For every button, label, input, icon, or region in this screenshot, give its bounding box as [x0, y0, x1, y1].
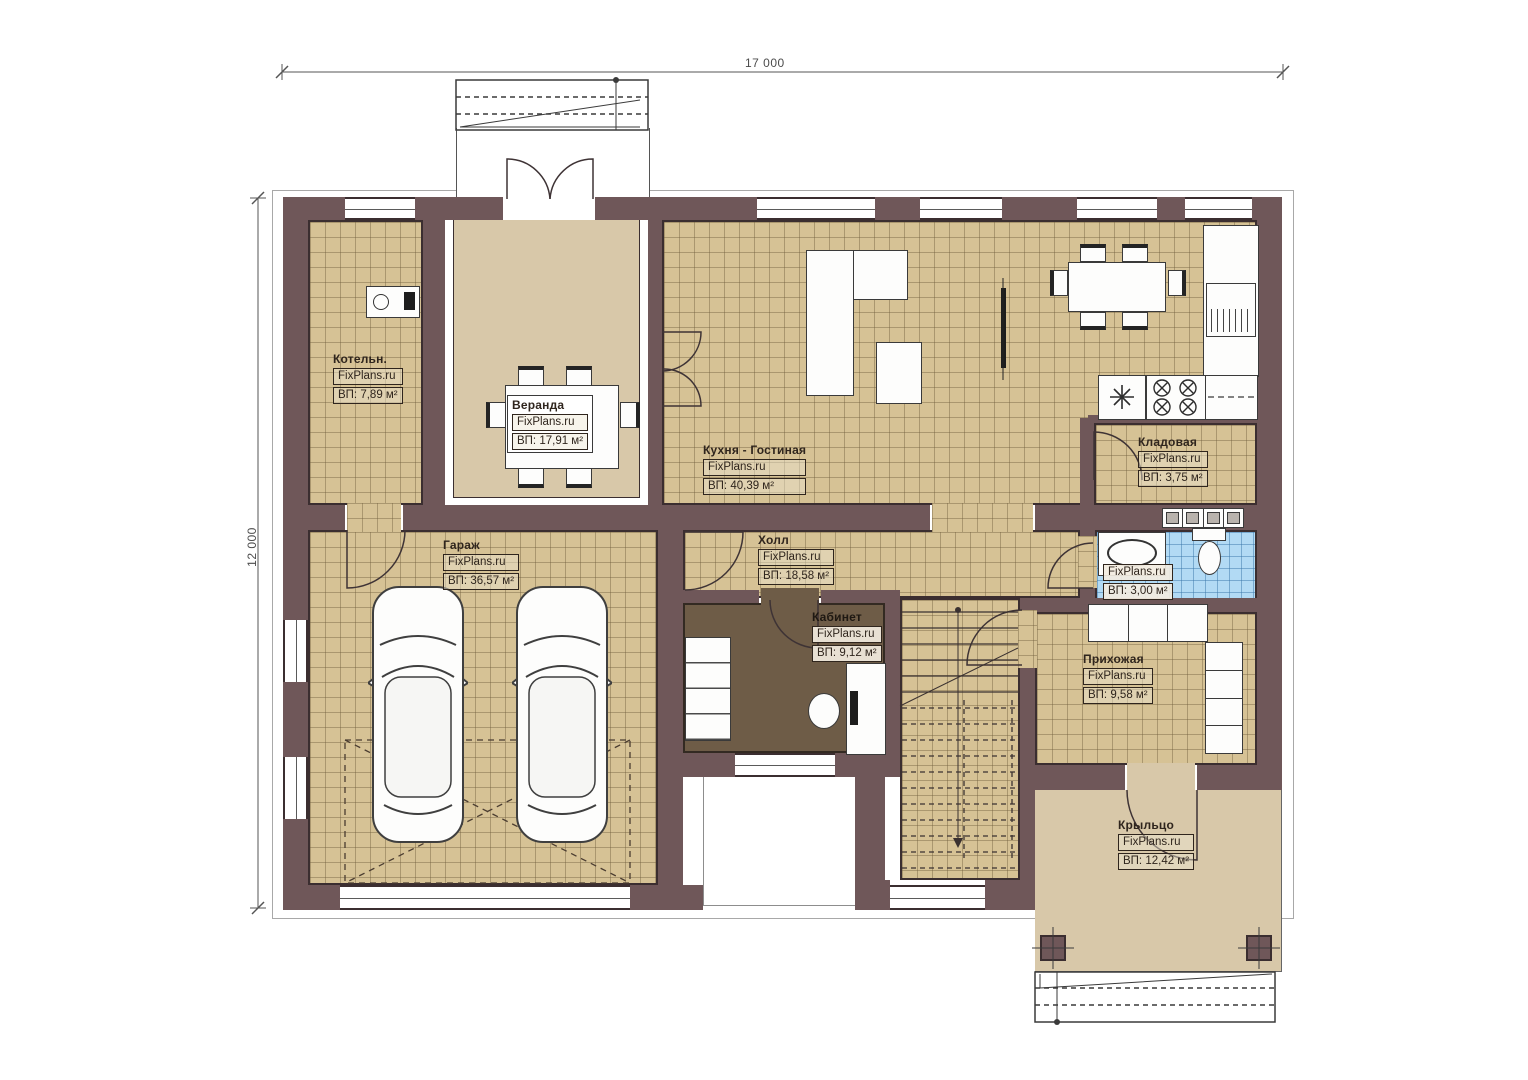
room-label-kitchen-living: Кухня - Гостиная FixPlans.ru ВП: 40,39 м… [703, 443, 806, 495]
door-opening-entrance-hall [1018, 610, 1037, 668]
boiler-dial [373, 294, 389, 310]
door-opening-porch [1127, 763, 1195, 792]
toilet-bowl [1198, 541, 1221, 575]
wall-garage-east [658, 508, 683, 885]
opening-kitchen-hall [932, 503, 1033, 532]
stove [1146, 375, 1206, 420]
hall-floor [683, 530, 1080, 598]
wall-entrance-west-b [1020, 666, 1035, 880]
wall-stairs-south-b [985, 880, 1035, 910]
chair [1168, 270, 1186, 296]
wall-east [1257, 197, 1282, 790]
wall-mid-d [1035, 505, 1082, 530]
chair [566, 468, 592, 488]
wall-mid-b [403, 505, 702, 530]
veranda-landing [456, 128, 650, 197]
window-kitchen-2 [1185, 197, 1252, 220]
wall-office-south-a [683, 753, 735, 777]
exterior-niche [703, 777, 857, 906]
stairwell-floor [900, 598, 1020, 880]
sofa-side-section [806, 250, 854, 396]
wall-garage-south-b [630, 885, 703, 910]
window-office-bay [735, 753, 835, 777]
coffee-table [876, 342, 922, 404]
fridge-grille [1211, 309, 1251, 332]
room-label-boiler: Котельн. FixPlans.ru ВП: 7,89 м² [333, 352, 403, 404]
dining-table [1068, 262, 1166, 312]
office-monitor [850, 691, 858, 725]
bathroom-cabinet-row [1162, 508, 1244, 528]
wardrobe-top [1088, 604, 1208, 642]
chair [1122, 244, 1148, 262]
room-label-office: Кабинет FixPlans.ru ВП: 9,12 м² [812, 610, 882, 662]
wall-mid-c [702, 505, 930, 530]
veranda-doorway [503, 197, 595, 220]
chair [518, 468, 544, 488]
room-label-entrance-hall: Прихожая FixPlans.ru ВП: 9,58 м² [1083, 652, 1153, 704]
window-garage-1 [283, 620, 308, 682]
kitchen-sink-unit [1098, 375, 1146, 420]
chair [1050, 270, 1068, 296]
chair [1080, 312, 1106, 330]
wall-mid-a [283, 505, 345, 530]
window-kitchen-1 [1077, 197, 1157, 220]
wall-veranda-kitchen [648, 197, 662, 508]
chair [566, 366, 592, 386]
room-label-porch: Крыльцо FixPlans.ru ВП: 12,42 м² [1118, 818, 1194, 870]
wall-office-east [885, 603, 900, 753]
room-label-veranda: Веранда FixPlans.ru ВП: 17,91 м² [508, 396, 592, 452]
fridge [1206, 283, 1256, 337]
window-stairs [890, 885, 985, 910]
wall-office-north-b [821, 590, 900, 603]
wall-storage-west [1080, 418, 1094, 505]
tv [1001, 288, 1006, 368]
room-label-hall: Холл FixPlans.ru ВП: 18,58 м² [758, 533, 834, 585]
chair [1122, 312, 1148, 330]
room-label-bathroom: FixPlans.ru ВП: 3,00 м² [1103, 562, 1173, 600]
window-living-2 [920, 197, 1002, 220]
chair [486, 402, 506, 428]
office-chair [808, 693, 840, 729]
garage-door [340, 885, 630, 910]
wall-entrance-south-a [1035, 765, 1125, 790]
wall-stairs-west [855, 755, 885, 880]
wall-office-north-a [683, 590, 759, 603]
wall-stairs-south-a [855, 880, 890, 910]
window-living-1 [757, 197, 875, 220]
office-shelf [685, 637, 731, 741]
door-opening-bathroom [1078, 536, 1097, 588]
veranda-steps [456, 77, 648, 130]
dimension-left-label: 12 000 [245, 527, 259, 567]
wall-boiler-veranda [423, 197, 445, 508]
porch-steps [1035, 972, 1275, 1025]
porch-column [1040, 935, 1066, 961]
porch-column [1246, 935, 1272, 961]
window-garage-2 [283, 757, 308, 819]
room-label-garage: Гараж FixPlans.ru ВП: 36,57 м² [443, 538, 519, 590]
chair [620, 402, 640, 428]
room-label-storage: Кладовая FixPlans.ru ВП: 3,75 м² [1138, 435, 1208, 487]
door-opening-boiler-garage [347, 503, 401, 532]
floor-plan-canvas: 17 000 12 000 Котельн. FixPlans.ru ВП: 7… [0, 0, 1528, 1080]
dimension-top-label: 17 000 [745, 56, 785, 70]
wardrobe-right [1205, 642, 1243, 754]
door-opening-office [761, 588, 819, 605]
boiler-panel [404, 292, 415, 310]
chair [1080, 244, 1106, 262]
wall-entrance-south-b [1197, 765, 1282, 790]
chair [518, 366, 544, 386]
window-boiler [345, 197, 415, 220]
toilet-tank [1192, 528, 1226, 541]
wall-garage-south-a [283, 885, 340, 910]
boiler-unit [366, 286, 420, 318]
